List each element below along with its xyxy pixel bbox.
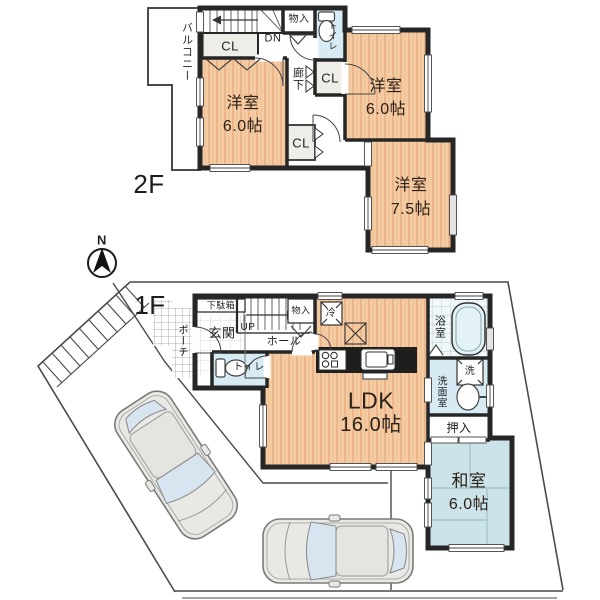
room-northeast-name: 洋室	[369, 79, 402, 95]
floor2-label: 2F	[133, 171, 164, 197]
hallway-label: 廊下	[292, 67, 303, 91]
room-west-floor	[200, 58, 287, 168]
refrigerator-label: 冷	[326, 309, 337, 319]
stairs-down-label: DN	[265, 34, 282, 45]
car-1	[105, 382, 247, 547]
washer-label: 洗	[465, 367, 476, 377]
room-west-name: 洋室	[226, 96, 259, 112]
compass-north-label: N	[97, 234, 107, 247]
oshiire-label: 押入	[446, 422, 471, 434]
storage-1f-label: 物入	[291, 307, 310, 316]
slope-hatch	[43, 286, 149, 387]
hall-label: ホール	[267, 337, 302, 348]
floor1-label: 1F	[134, 292, 165, 318]
stairs-down-arrow	[212, 16, 258, 25]
closet-1-label: CL	[221, 40, 239, 53]
room-west-size: 6.0帖	[223, 119, 263, 135]
washitsu-size: 6.0帖	[449, 497, 489, 513]
closet-3-label: CL	[292, 137, 310, 150]
storage-2f-label: 物入	[289, 15, 310, 25]
room-southeast-floor	[368, 140, 453, 250]
washroom-label: 洗面室	[435, 376, 445, 409]
bathroom-label: 浴室	[434, 315, 445, 339]
room-southeast-name: 洋室	[394, 178, 427, 194]
closet-2-label: CL	[321, 72, 339, 85]
toilet-2f-label: トイレ	[328, 21, 337, 51]
porch-label: ポーチ	[176, 325, 186, 358]
entrance-label: 玄関	[208, 327, 235, 340]
car-2	[263, 515, 413, 587]
stairs-up-label: UP	[241, 323, 256, 333]
balcony-label: バルコニー	[181, 22, 192, 82]
ldk-name: LDK	[348, 390, 394, 413]
bathtub-icon	[452, 303, 485, 355]
ldk-size: 16.0帖	[340, 415, 401, 435]
room-southeast-size: 7.5帖	[391, 202, 431, 218]
shoe-cabinet-label: 下駄箱	[207, 302, 236, 311]
toilet-1f-label: トイレ	[233, 363, 265, 373]
room-northeast-size: 6.0帖	[366, 102, 406, 118]
compass-icon	[88, 248, 116, 277]
washitsu-name: 和室	[452, 473, 487, 490]
floorplan: 2F バルコニー DN CL CL CL 物入 トイレ 廊下 洋室 6.0帖 洋…	[0, 0, 600, 600]
